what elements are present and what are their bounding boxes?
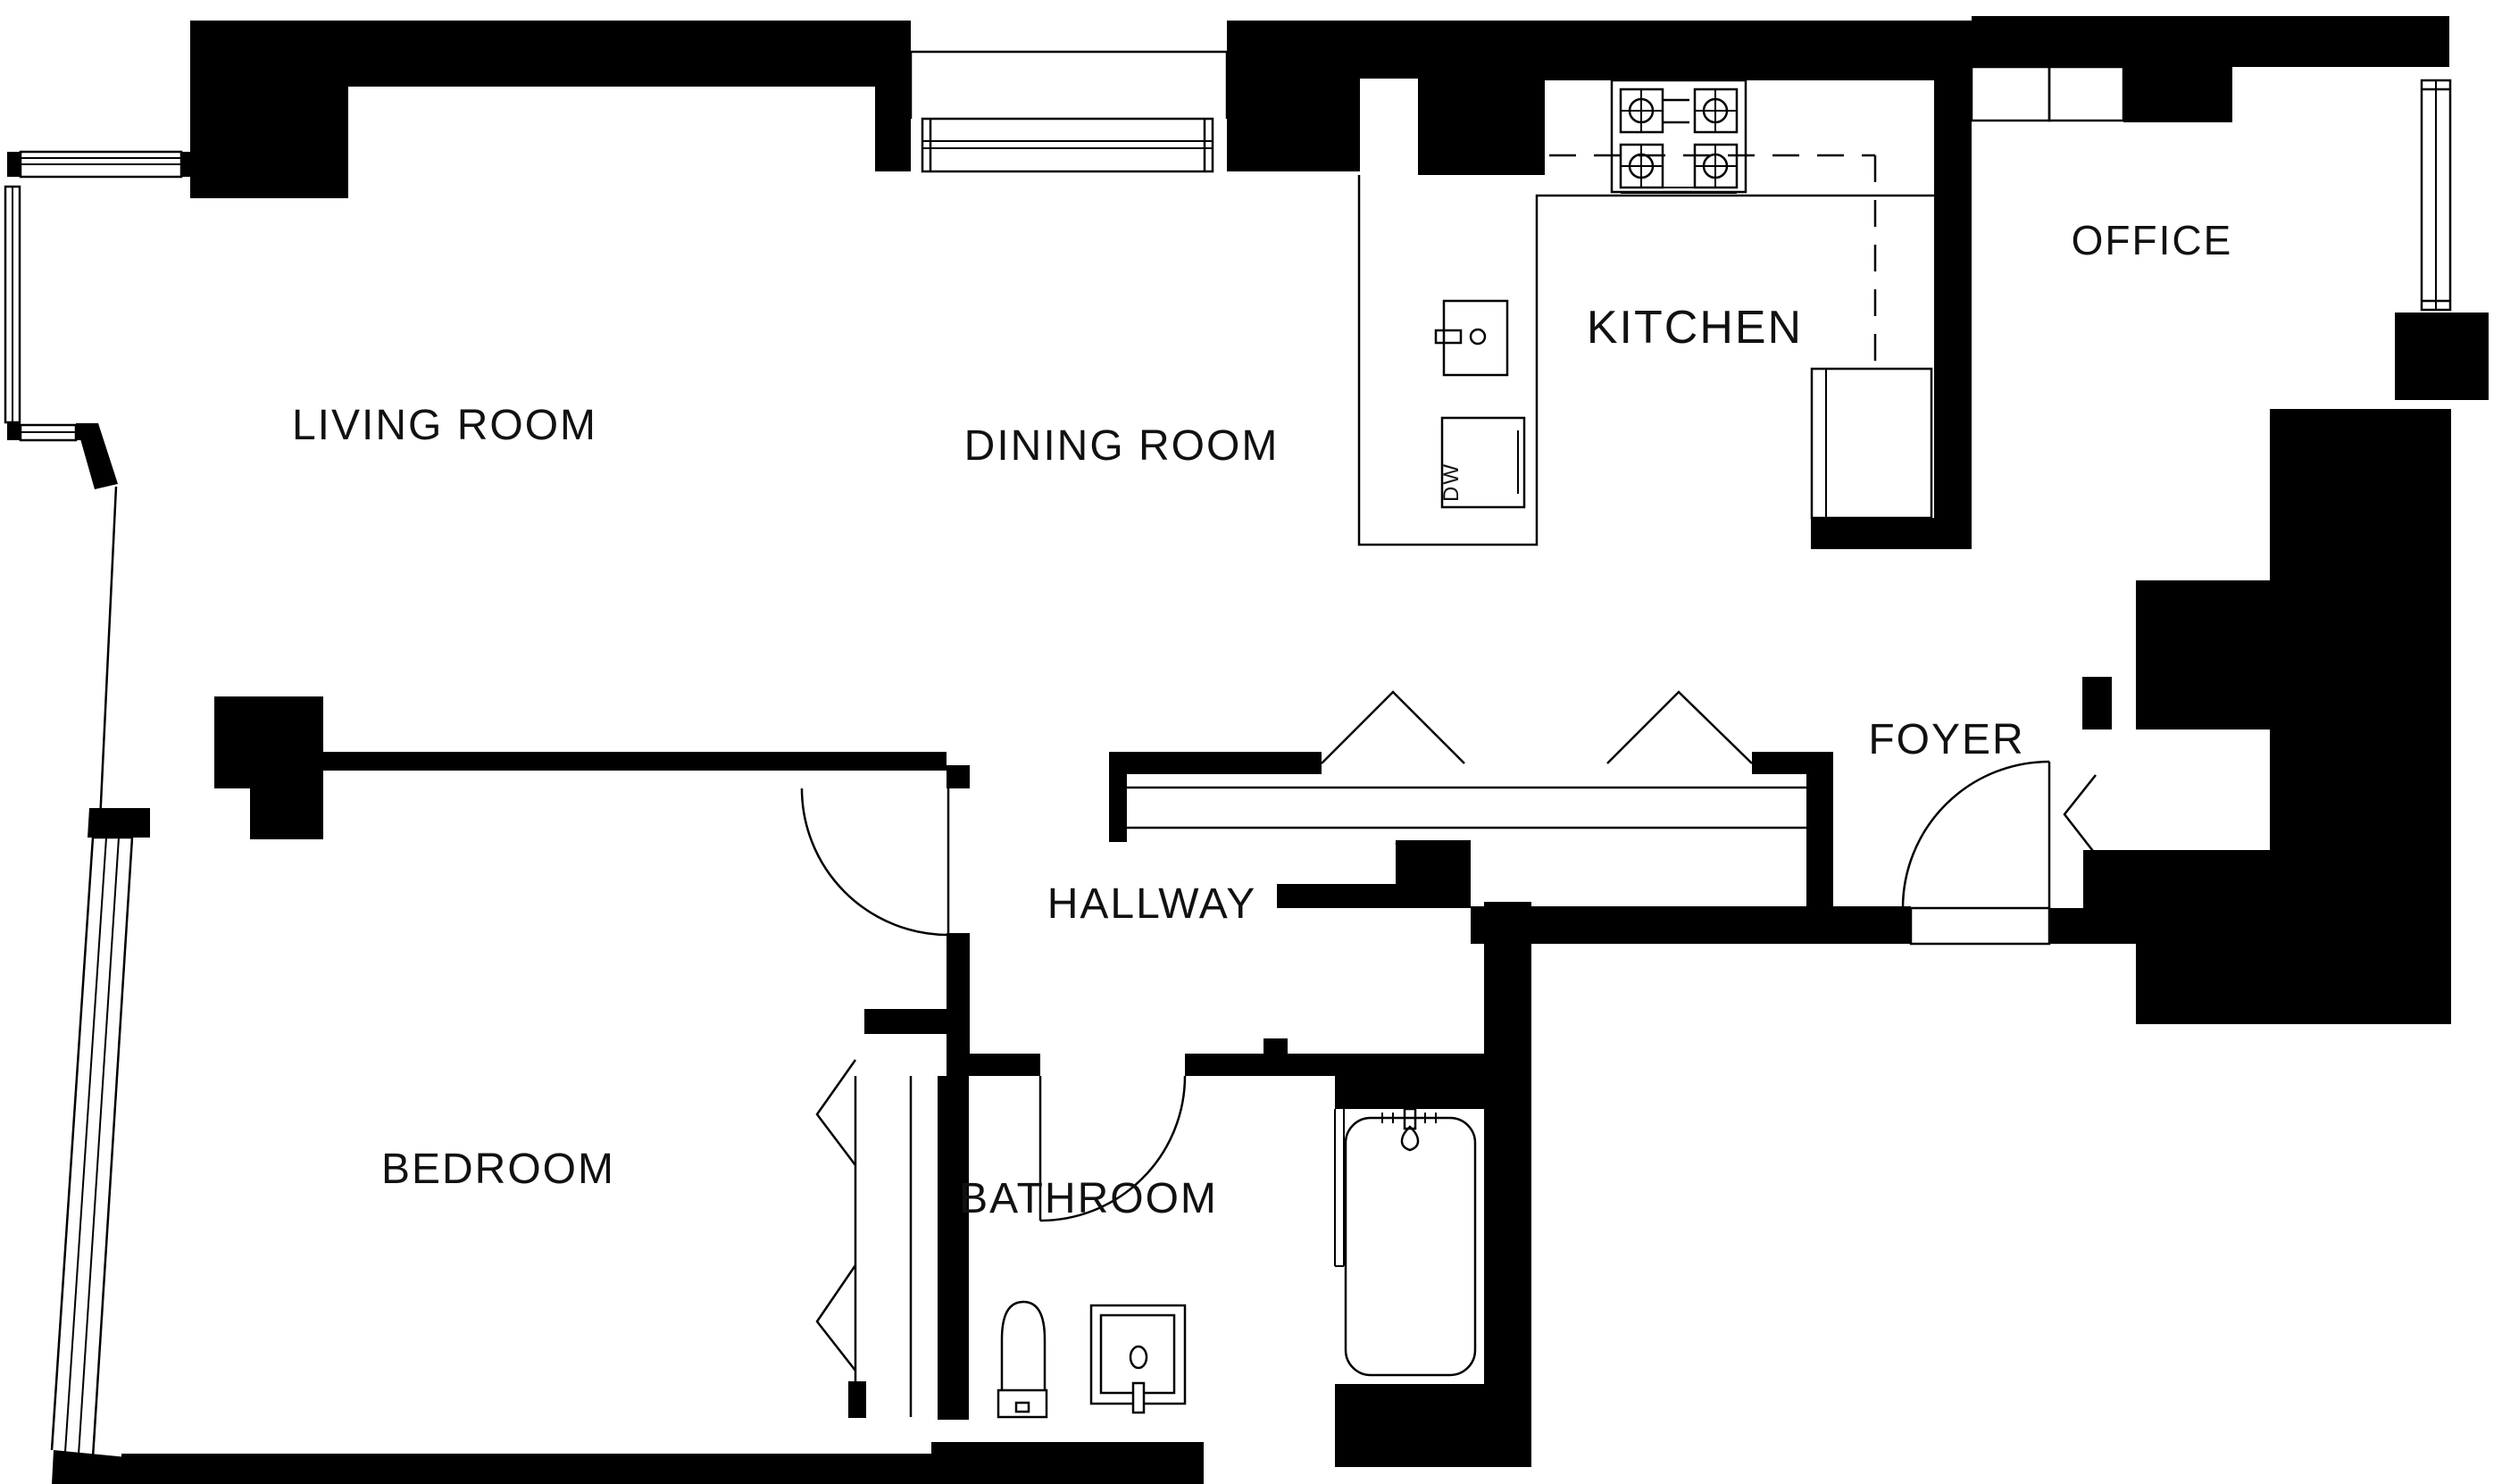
- dishwasher-label: DW: [1439, 463, 1464, 502]
- foyer-closet-door-icon: [2064, 775, 2096, 855]
- floor-plan: DW LIVING: [0, 0, 2502, 1484]
- wall-living-top-band: [348, 21, 911, 87]
- living-window-southwest-icon: [21, 425, 76, 440]
- wall-foyer-right-upper: [2136, 580, 2270, 729]
- wall-hall-foyer-block: [1396, 840, 1471, 908]
- wall-over-tub: [1335, 1054, 1484, 1109]
- wall-entry-jamb-lower: [2083, 850, 2136, 908]
- tub-faucet-icon: [1402, 1109, 1418, 1150]
- wall-bath-bump: [1264, 1038, 1288, 1054]
- bathroom-fixtures: [998, 1109, 1475, 1417]
- wall-entry-jamb-upper: [2082, 677, 2112, 729]
- wall-sw-wedge: [52, 1450, 127, 1484]
- wall-kitchen-bottom-band: [1811, 518, 1972, 549]
- wall-right-mass: [2270, 409, 2451, 1024]
- wall-office-closet-block: [2123, 56, 2232, 122]
- bathroom-sink-icon: [1091, 1305, 1185, 1413]
- wall-kitchen-top-band: [1418, 21, 1972, 80]
- wall-top-window-jamb: [181, 152, 190, 177]
- bathtub-icon: [1346, 1109, 1475, 1375]
- label-bathroom: BATHROOM: [959, 1175, 1218, 1222]
- wall-bath-top-left: [947, 1054, 1040, 1076]
- hall-closet-doors-icon: [1322, 692, 1752, 763]
- wall-bath-right: [1484, 902, 1531, 1467]
- wall-above-notch: [1360, 21, 1418, 79]
- label-bedroom: BEDROOM: [381, 1146, 615, 1193]
- wall-hall-entry-strip: [1109, 752, 1127, 842]
- wall-bedroom-door-strip: [947, 933, 970, 1071]
- wall-bedroom-corner-b: [250, 771, 323, 839]
- wall-bedroom-door-head: [947, 765, 970, 788]
- entry-door-icon: [1903, 762, 2049, 944]
- dining-window-icon: [911, 52, 1227, 171]
- refrigerator-icon: [1812, 369, 1931, 518]
- tub-niche-edge: [1335, 1109, 1344, 1266]
- burner-4: [1695, 145, 1737, 188]
- label-kitchen: KITCHEN: [1587, 302, 1803, 354]
- dishwasher-icon: DW: [1439, 418, 1524, 507]
- wall-closet-band-left: [1127, 752, 1322, 774]
- kitchen-sink-icon: [1436, 301, 1507, 375]
- wall-living-band-end: [875, 21, 911, 171]
- bedroom-closet-doors-icon: [817, 1060, 855, 1371]
- label-living-room: LIVING ROOM: [292, 402, 597, 449]
- label-dining-room: DINING ROOM: [964, 422, 1280, 470]
- wall-w-corner-sq: [7, 422, 21, 440]
- wall-bedroom-bottom-band: [121, 1454, 986, 1484]
- bedroom-door-icon: [802, 788, 948, 935]
- wall-foyer-bottom-right: [2049, 908, 2136, 944]
- wall-closet-bath-strip: [938, 1076, 969, 1420]
- doors: [802, 692, 2096, 1371]
- wall-under-tub: [1335, 1384, 1484, 1467]
- office-closet-icon: [1972, 67, 2123, 121]
- wall-bath-top-right: [1185, 1054, 1338, 1076]
- wall-foyer-right-lower: [2136, 850, 2270, 1024]
- label-office: OFFICE: [2072, 217, 2233, 263]
- wall-closet-foot-block: [848, 1381, 866, 1418]
- stove-icon: [1612, 80, 1746, 193]
- bedroom-window-icon: [52, 487, 132, 1457]
- living-window-north-icon: [21, 152, 181, 177]
- toilet-icon: [998, 1302, 1047, 1417]
- burner-3: [1621, 145, 1663, 188]
- wall-nw-corner-sq: [7, 152, 21, 177]
- wall-bath-vestibule: [864, 1009, 947, 1034]
- living-window-west-icon: [5, 187, 20, 422]
- burner-1: [1621, 89, 1663, 132]
- label-foyer: FOYER: [1868, 716, 2024, 763]
- wall-foyer-bottom-band: [1471, 906, 1911, 944]
- wall-kitchen-topleft-block: [1418, 76, 1545, 175]
- wall-diagonal-knee: [76, 423, 118, 489]
- burner-2: [1695, 89, 1737, 132]
- wall-foyer-left-strip: [1806, 774, 1833, 908]
- wall-top-left-block: [190, 21, 348, 198]
- wall-kitchen-office-divider: [1934, 80, 1972, 549]
- wall-hall-bottom-band: [1277, 884, 1396, 908]
- office-window-icon: [2422, 80, 2450, 310]
- wall-ne-chunk: [2395, 313, 2489, 400]
- wall-window-top-wedge: [88, 808, 150, 838]
- wall-bedroom-top-band: [323, 752, 947, 771]
- wall-dining-kitchen: [1227, 21, 1360, 171]
- wall-closet-band-right: [1752, 752, 1833, 774]
- label-hallway: HALLWAY: [1047, 880, 1257, 928]
